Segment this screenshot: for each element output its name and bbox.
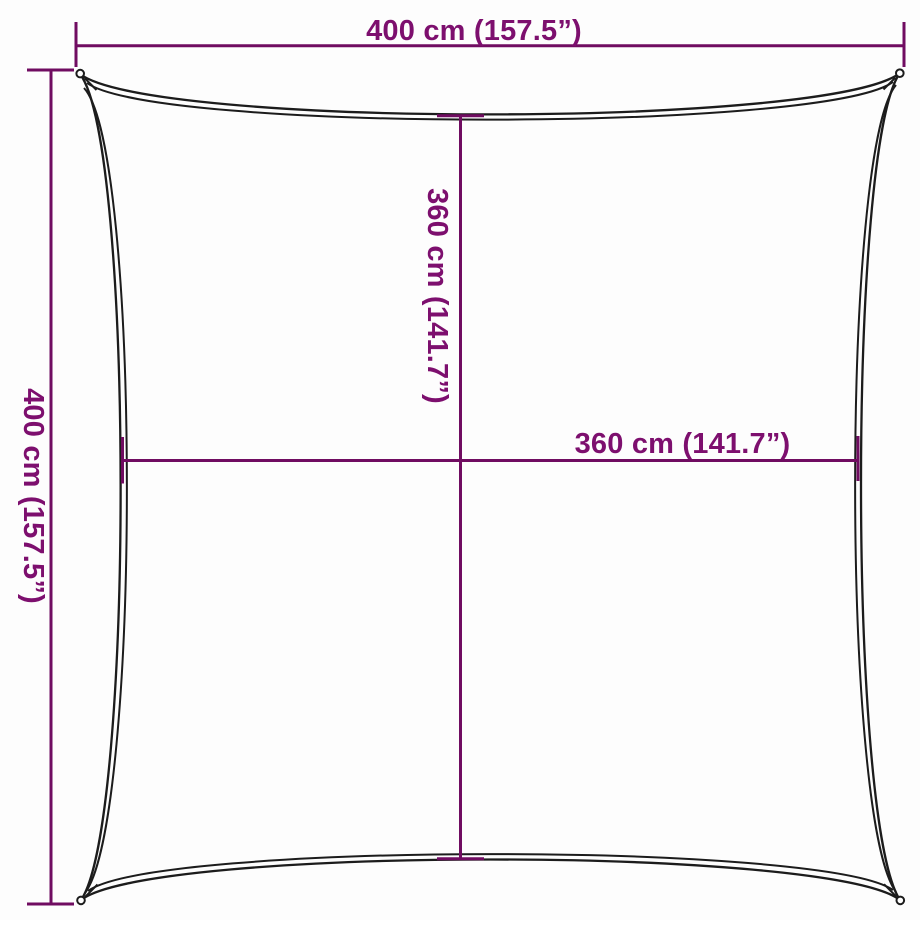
svg-text:360 cm (141.7”): 360 cm (141.7”) xyxy=(575,428,791,460)
svg-text:400 cm (157.5”): 400 cm (157.5”) xyxy=(17,388,49,604)
svg-text:360 cm (141.7”): 360 cm (141.7”) xyxy=(421,188,453,404)
svg-text:400 cm (157.5”): 400 cm (157.5”) xyxy=(366,15,582,47)
